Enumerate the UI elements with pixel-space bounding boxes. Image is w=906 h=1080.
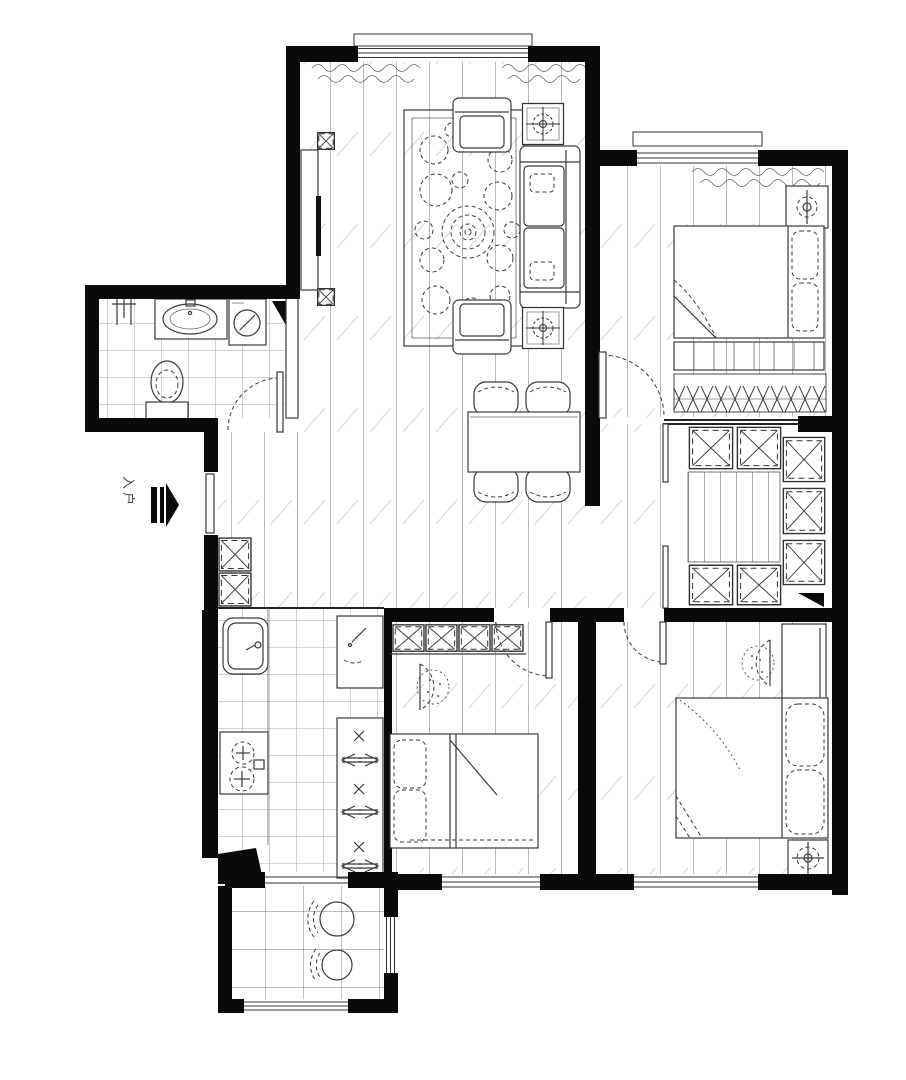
dining-table bbox=[468, 412, 580, 472]
tall-cabinet bbox=[337, 718, 383, 878]
bed bbox=[674, 226, 824, 338]
wardrobe-xbox-icon bbox=[783, 437, 824, 481]
wardrobe-xbox-icon bbox=[783, 540, 824, 584]
door-entry bbox=[206, 474, 214, 533]
wardrobe-xbox-icon bbox=[737, 565, 780, 604]
speaker-xbox-icon bbox=[318, 133, 335, 150]
armchair bbox=[453, 98, 511, 152]
bed bbox=[390, 734, 538, 848]
armchair bbox=[453, 300, 511, 354]
stove bbox=[220, 732, 268, 794]
arrow-right-icon bbox=[151, 483, 179, 527]
window-living-top bbox=[354, 34, 532, 58]
hanging-rail bbox=[688, 472, 780, 562]
wardrobe-xbox-icon bbox=[459, 625, 490, 651]
bed bbox=[676, 698, 828, 838]
washing-machine-icon bbox=[229, 299, 266, 345]
wardrobe-xbox-icon bbox=[393, 625, 424, 651]
dining-chair bbox=[474, 382, 518, 416]
entry-label: 入户 bbox=[120, 476, 136, 508]
wardrobe-xbox-icon bbox=[689, 565, 732, 604]
sofa bbox=[520, 146, 580, 308]
dining-chair bbox=[526, 468, 570, 502]
shoe-cabinet-xbox-icon bbox=[219, 538, 251, 571]
table-lamp-icon bbox=[523, 308, 564, 349]
nightstand bbox=[788, 840, 828, 876]
wardrobe-xbox-icon bbox=[492, 625, 523, 651]
table-lamp-icon bbox=[523, 104, 564, 145]
kitchen-sink bbox=[223, 618, 268, 674]
window-balcony-right bbox=[387, 917, 395, 973]
bathroom-sink bbox=[155, 299, 227, 339]
sliding-door bbox=[265, 877, 348, 883]
wardrobe-xbox-icon bbox=[737, 427, 780, 468]
closet-partition bbox=[663, 424, 668, 482]
corridor-floor bbox=[600, 424, 663, 608]
zigzag-rug bbox=[674, 374, 826, 412]
wardrobe-xbox-icon bbox=[689, 427, 732, 468]
kitchen-counter-desk bbox=[337, 616, 383, 688]
bathroom-partition-wall bbox=[286, 298, 298, 418]
dining-chair bbox=[474, 468, 518, 502]
balcony-floor bbox=[232, 886, 384, 999]
tv-icon bbox=[316, 196, 321, 256]
window-bedroom-2 bbox=[634, 877, 758, 887]
window-bedroom-3 bbox=[442, 877, 540, 887]
window-bedroom-master bbox=[633, 132, 762, 163]
nightstand bbox=[786, 186, 828, 228]
shoe-cabinet-xbox-icon bbox=[219, 573, 251, 606]
wardrobe-xbox-icon bbox=[426, 625, 457, 651]
closet-partition bbox=[663, 546, 668, 608]
wardrobe-xbox-icon bbox=[783, 488, 824, 533]
desk bbox=[782, 624, 826, 702]
dining-chair bbox=[526, 382, 570, 416]
window-balcony-bottom bbox=[244, 1002, 348, 1010]
floor-plan-page: 入户 bbox=[0, 0, 906, 1080]
speaker-xbox-icon bbox=[318, 289, 335, 306]
entry-annotation: 入户 bbox=[120, 476, 179, 527]
floor-plan: 入户 bbox=[0, 0, 906, 1080]
